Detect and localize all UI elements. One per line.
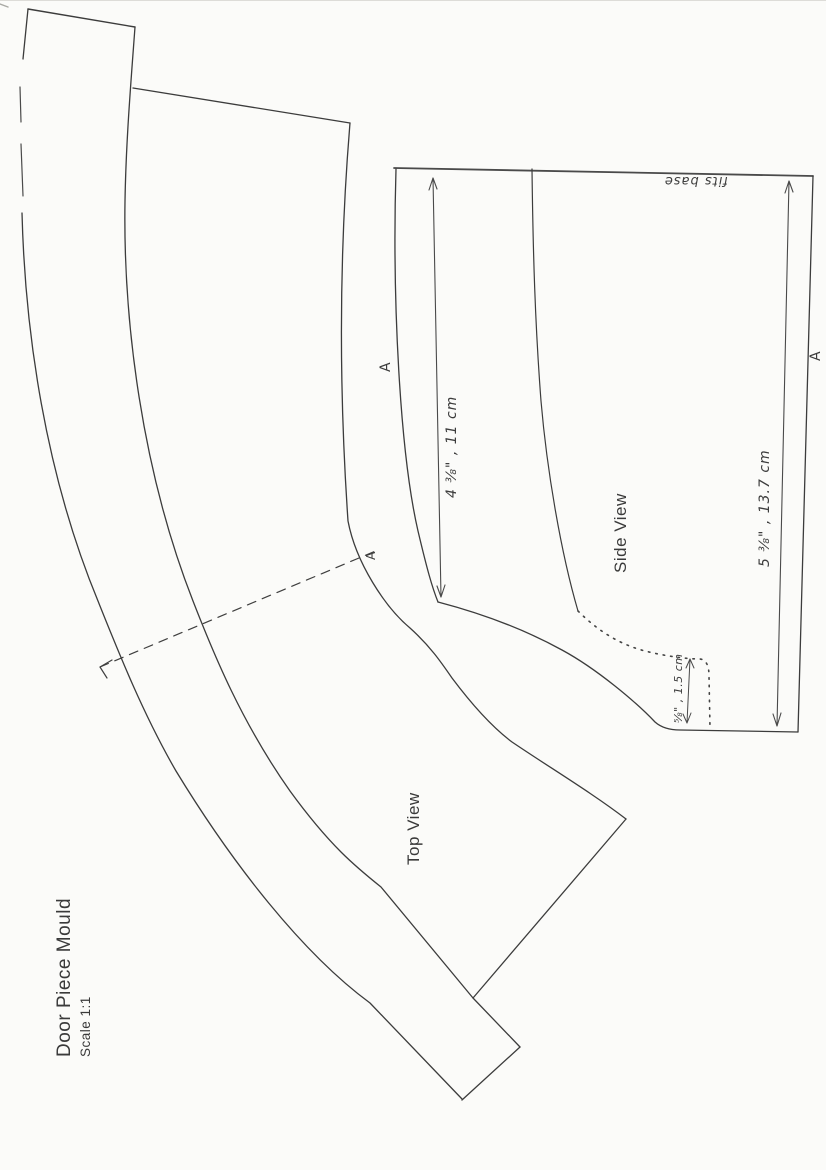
- side-view-left-letter-a: A: [378, 362, 394, 372]
- top-view-outer-edge-start: [23, 9, 28, 59]
- side-view-right-letter-a: A: [808, 351, 824, 361]
- top-view-outer-curve: [22, 213, 462, 1099]
- top-view-top-edge-outer: [28, 9, 135, 27]
- top-view-tail-end-edge: [462, 1047, 520, 1100]
- section-line-dashed: [100, 550, 378, 667]
- side-view-inner-curve: [532, 169, 578, 611]
- side-view-right-edge: [798, 176, 813, 732]
- top-view-label: Top View: [404, 792, 424, 865]
- dimension-text-11cm: 4 ⅜" , 11 cm: [444, 396, 460, 498]
- section-line-arrowhead: [100, 660, 112, 678]
- scan-corner-mark: [0, 4, 8, 7]
- side-view-label: Side View: [611, 493, 631, 573]
- page-title: Door Piece Mould: [54, 898, 76, 1057]
- side-view-bottom-edge: [438, 602, 798, 732]
- side-view-left-edge: [395, 169, 438, 602]
- scanned-drawing-page: Door Piece Mould Scale 1:1 Top View Side…: [0, 0, 826, 1170]
- dimension-text-1-5cm: ⅝" , 1.5 cm: [672, 654, 685, 723]
- top-view-point-return-edge: [473, 819, 626, 998]
- dimension-text-13-7cm: 5 ⅜" , 13.7 cm: [757, 449, 773, 567]
- top-view-middle-curve: [125, 27, 520, 1047]
- top-view-top-edge-inner: [133, 88, 350, 123]
- scale-note: Scale 1:1: [78, 996, 93, 1057]
- side-view-top-edge: [394, 168, 813, 176]
- top-view-fold-dashes: [20, 87, 23, 196]
- dimension-line-11cm: [433, 178, 441, 597]
- base-note: fits base: [652, 173, 728, 188]
- dimension-line-1-5cm: [687, 659, 690, 723]
- dimension-line-13-7cm: [777, 181, 789, 726]
- section-letter-a: A: [364, 552, 378, 560]
- top-view-inner-curve: [341, 123, 626, 819]
